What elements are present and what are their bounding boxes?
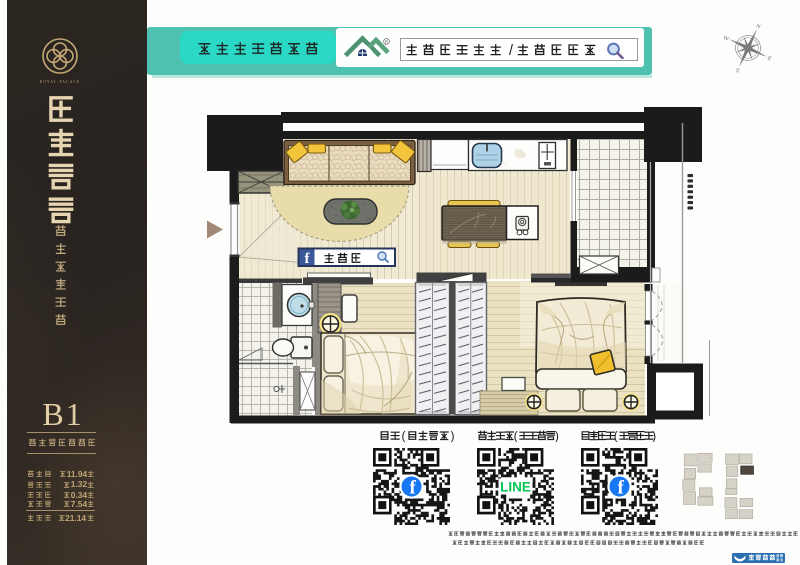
- svg-text:f: f: [618, 477, 625, 498]
